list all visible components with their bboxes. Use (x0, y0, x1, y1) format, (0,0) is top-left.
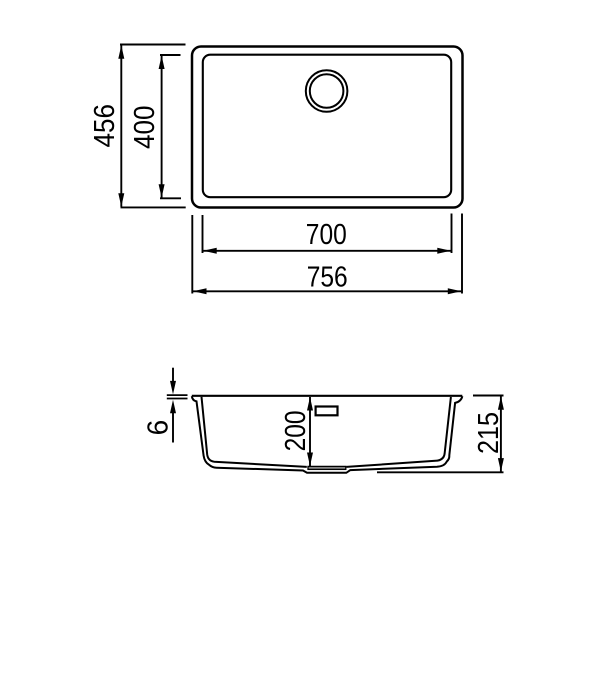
svg-text:756: 756 (307, 261, 348, 293)
svg-text:215: 215 (473, 412, 505, 454)
svg-text:6: 6 (142, 420, 174, 436)
svg-text:200: 200 (280, 410, 312, 451)
svg-text:400: 400 (129, 105, 161, 149)
svg-text:456: 456 (89, 104, 121, 148)
svg-text:700: 700 (306, 219, 347, 251)
